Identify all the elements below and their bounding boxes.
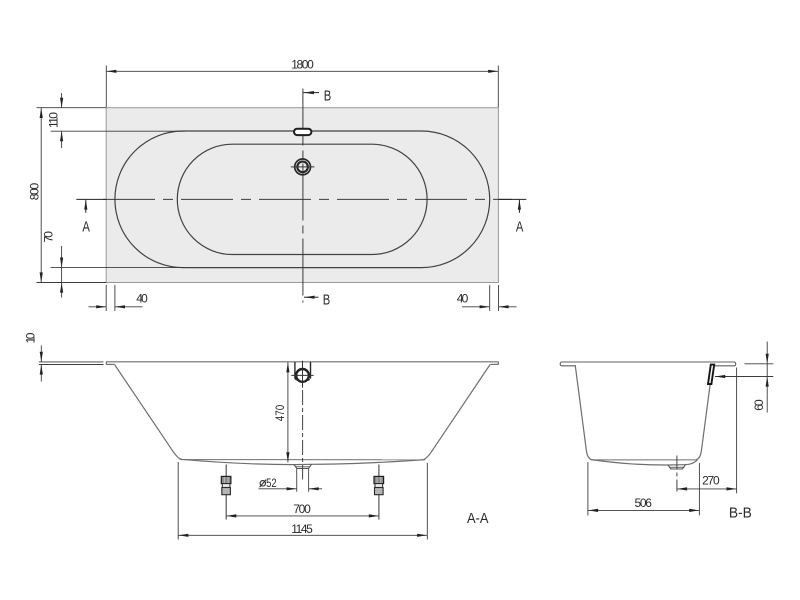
svg-text:800: 800 — [28, 182, 42, 200]
svg-text:270: 270 — [702, 473, 720, 487]
svg-text:B: B — [323, 291, 331, 308]
svg-text:40: 40 — [136, 292, 148, 306]
svg-text:52: 52 — [266, 476, 277, 490]
svg-text:1800: 1800 — [291, 57, 314, 71]
svg-text:B: B — [324, 88, 332, 105]
svg-text:A: A — [516, 219, 524, 236]
svg-text:60: 60 — [752, 399, 766, 411]
svg-text:700: 700 — [293, 502, 311, 516]
svg-text:70: 70 — [41, 231, 55, 243]
svg-text:506: 506 — [634, 496, 652, 510]
svg-text:A-A: A-A — [467, 510, 489, 527]
svg-text:110: 110 — [47, 112, 61, 128]
svg-text:A: A — [82, 218, 90, 235]
svg-text:40: 40 — [457, 292, 469, 306]
svg-text:470: 470 — [273, 404, 287, 421]
svg-text:10: 10 — [24, 332, 38, 343]
svg-text:B-B: B-B — [729, 505, 752, 522]
svg-text:1145: 1145 — [291, 522, 313, 536]
